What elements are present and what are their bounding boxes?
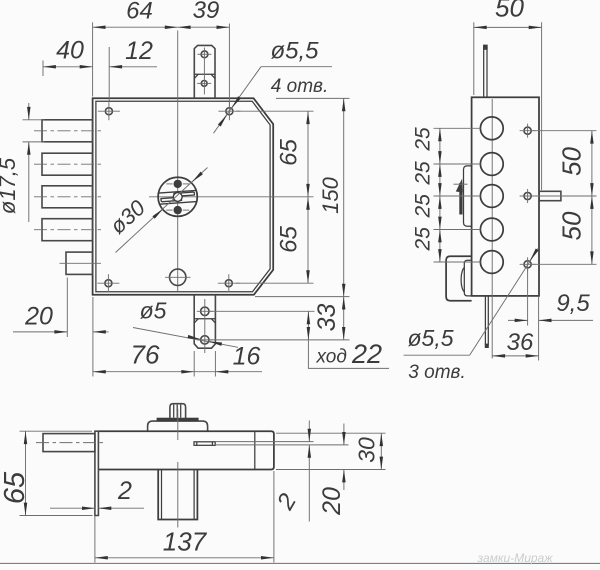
svg-text:65: 65 <box>276 226 303 253</box>
svg-text:50: 50 <box>557 147 587 176</box>
svg-text:150: 150 <box>318 176 343 213</box>
svg-text:3 отв.: 3 отв. <box>408 362 465 383</box>
svg-text:20: 20 <box>24 303 53 331</box>
svg-text:40: 40 <box>56 37 84 65</box>
svg-text:ø5: ø5 <box>140 298 167 324</box>
svg-text:9,5: 9,5 <box>556 290 590 317</box>
svg-text:ø17,5: ø17,5 <box>0 157 20 214</box>
svg-text:25: 25 <box>412 227 435 252</box>
svg-text:36: 36 <box>507 329 534 356</box>
svg-text:50: 50 <box>495 0 524 23</box>
svg-text:20: 20 <box>318 487 346 516</box>
svg-text:33: 33 <box>313 304 341 332</box>
svg-text:2: 2 <box>117 477 132 505</box>
svg-text:76: 76 <box>131 340 160 370</box>
svg-text:25: 25 <box>412 161 435 186</box>
svg-text:22: 22 <box>351 339 382 369</box>
svg-text:4 отв.: 4 отв. <box>271 76 328 97</box>
svg-text:137: 137 <box>163 527 208 557</box>
svg-text:12: 12 <box>125 37 153 65</box>
svg-text:39: 39 <box>193 0 220 24</box>
svg-text:замки-Мираж: замки-Мираж <box>477 551 554 565</box>
svg-text:64: 64 <box>126 0 153 25</box>
svg-text:25: 25 <box>412 127 435 152</box>
svg-text:50: 50 <box>557 211 587 240</box>
svg-text:ø5,5: ø5,5 <box>270 38 319 65</box>
svg-text:30: 30 <box>354 437 380 463</box>
svg-text:ø5,5: ø5,5 <box>407 325 453 351</box>
svg-text:25: 25 <box>412 194 435 219</box>
svg-text:65: 65 <box>0 471 31 504</box>
svg-text:ход: ход <box>316 347 347 368</box>
svg-text:65: 65 <box>276 139 303 166</box>
